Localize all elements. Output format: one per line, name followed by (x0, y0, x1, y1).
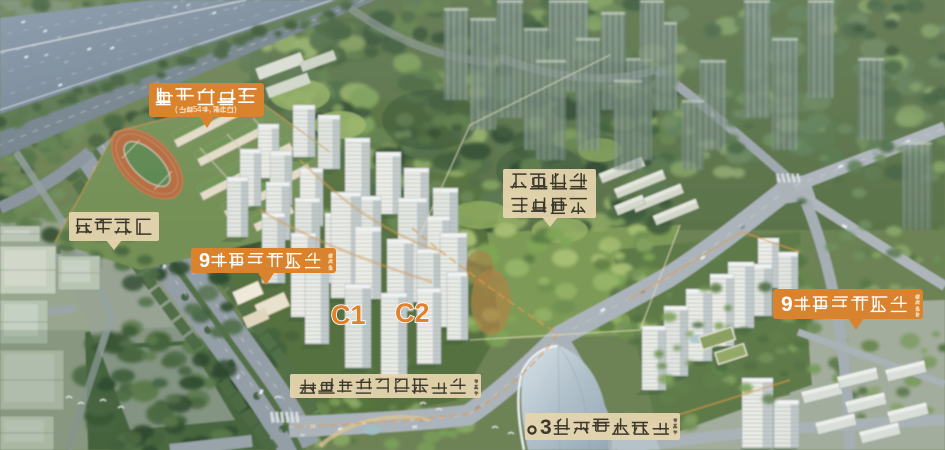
svg-text:3: 3 (540, 416, 552, 439)
svg-text:,: , (209, 105, 211, 114)
svg-text:C2: C2 (395, 298, 430, 328)
svg-text:4: 4 (197, 105, 202, 114)
svg-text:): ) (234, 105, 237, 114)
svg-text:9: 9 (781, 293, 793, 316)
svg-text:C1: C1 (331, 300, 366, 330)
svg-text:(: ( (175, 105, 178, 114)
svg-text:9: 9 (199, 250, 210, 272)
